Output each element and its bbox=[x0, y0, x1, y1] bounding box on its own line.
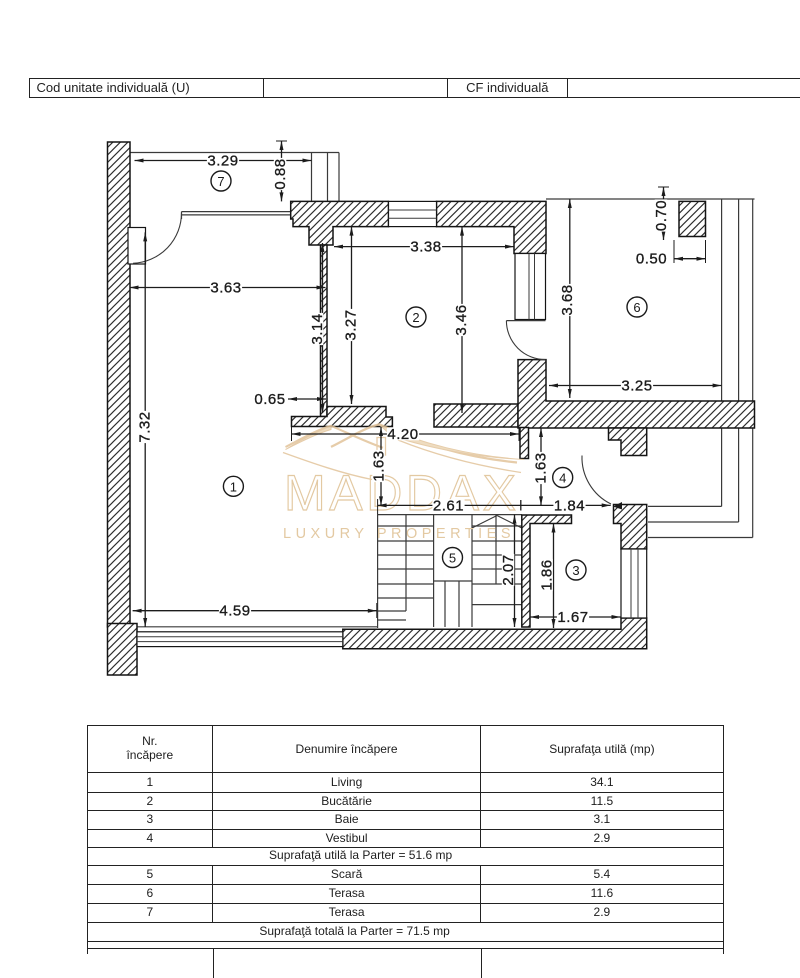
svg-text:3.25: 3.25 bbox=[621, 378, 652, 395]
svg-text:3.46: 3.46 bbox=[453, 304, 470, 335]
svg-text:0.50: 0.50 bbox=[636, 251, 667, 268]
svg-text:3.63: 3.63 bbox=[210, 280, 241, 297]
svg-text:1: 1 bbox=[230, 479, 237, 494]
svg-text:7: 7 bbox=[217, 174, 224, 189]
svg-text:LUXURY PROPERTIES: LUXURY PROPERTIES bbox=[283, 526, 515, 542]
svg-text:6: 6 bbox=[633, 300, 640, 315]
svg-text:3.68: 3.68 bbox=[559, 284, 576, 315]
svg-text:1.84: 1.84 bbox=[554, 497, 585, 514]
svg-text:3.38: 3.38 bbox=[410, 239, 441, 256]
svg-text:4: 4 bbox=[559, 471, 566, 486]
svg-text:1.86: 1.86 bbox=[539, 559, 556, 590]
svg-text:1.67: 1.67 bbox=[557, 609, 588, 626]
svg-text:1.63: 1.63 bbox=[371, 450, 388, 481]
svg-text:3: 3 bbox=[572, 563, 579, 578]
svg-text:0.65: 0.65 bbox=[254, 391, 285, 408]
svg-text:MADDAX: MADDAX bbox=[284, 465, 520, 521]
svg-text:0.70: 0.70 bbox=[653, 200, 670, 231]
svg-text:5: 5 bbox=[449, 551, 456, 566]
svg-text:0.88: 0.88 bbox=[272, 158, 289, 189]
svg-text:4.59: 4.59 bbox=[219, 603, 250, 620]
svg-text:4.20: 4.20 bbox=[387, 426, 418, 443]
svg-text:2.61: 2.61 bbox=[433, 497, 464, 514]
svg-text:3.14: 3.14 bbox=[309, 313, 326, 344]
svg-text:3.29: 3.29 bbox=[207, 153, 238, 170]
svg-text:7.32: 7.32 bbox=[137, 411, 154, 442]
svg-text:2: 2 bbox=[412, 310, 419, 325]
svg-text:1.63: 1.63 bbox=[533, 452, 550, 483]
svg-text:2.07: 2.07 bbox=[500, 554, 517, 585]
svg-text:3.27: 3.27 bbox=[343, 309, 360, 340]
